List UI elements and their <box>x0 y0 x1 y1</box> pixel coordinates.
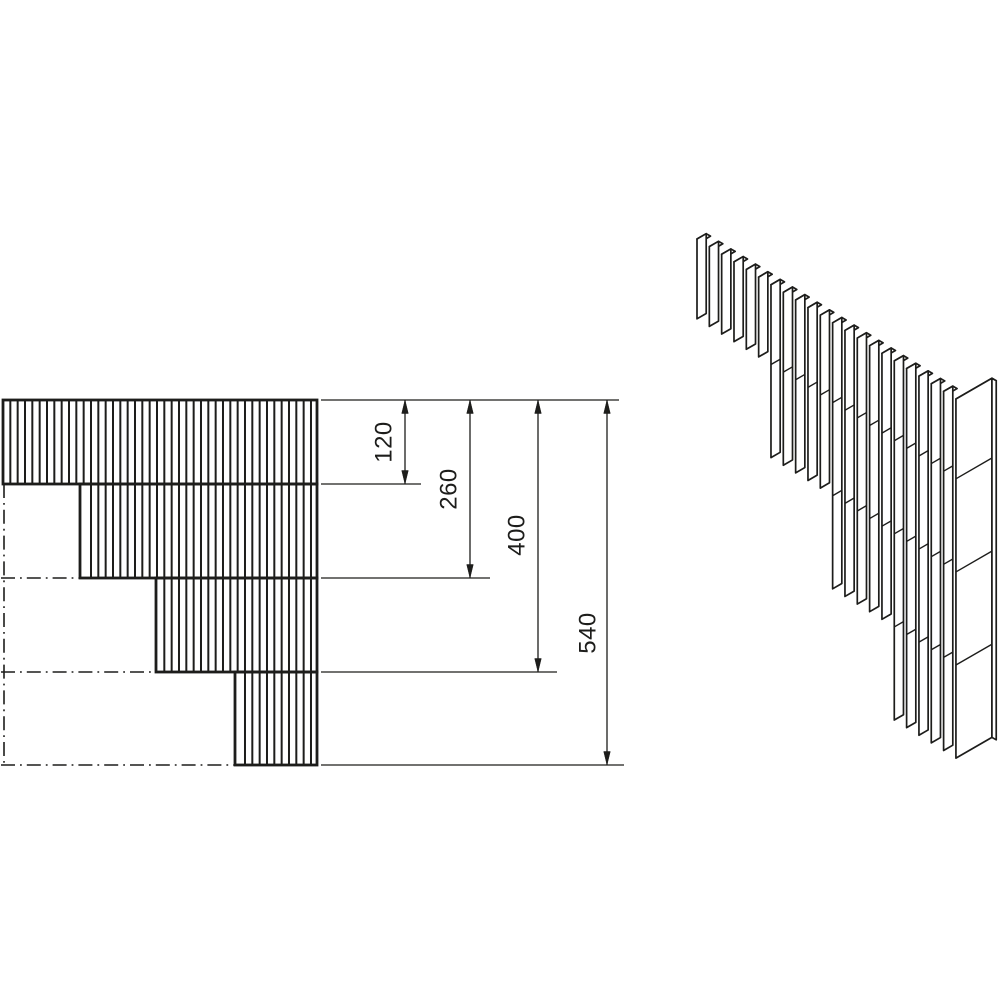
slat-front-face <box>734 257 743 342</box>
slat-front-face <box>759 272 768 357</box>
dimension-arrow-down <box>535 659 542 673</box>
dimension-arrow-up <box>535 400 542 414</box>
slat <box>808 302 822 480</box>
dimension-arrow-down <box>604 752 611 766</box>
end-panel-side-face <box>992 378 996 740</box>
slat <box>709 241 723 326</box>
slat <box>697 234 711 319</box>
front-view-row <box>235 672 317 765</box>
slat <box>894 356 908 720</box>
slat-front-face <box>919 371 928 735</box>
drawing-canvas: 120260400540 <box>0 0 1000 1000</box>
slat <box>746 264 760 349</box>
front-view-fins <box>10 400 311 765</box>
dimension-label: 540 <box>575 612 602 654</box>
slat <box>771 279 785 457</box>
dimensions: 120260400540 <box>321 400 624 765</box>
slat-front-face <box>796 295 805 473</box>
slat <box>907 363 921 727</box>
iso-view <box>697 234 996 758</box>
slat-front-face <box>697 234 706 319</box>
dimension-arrow-up <box>402 400 409 414</box>
slat <box>857 333 871 604</box>
slat-front-face <box>820 310 829 488</box>
dimension-arrow-up <box>604 400 611 414</box>
slat <box>734 257 748 342</box>
slat-front-face <box>870 340 879 611</box>
centerlines <box>1 484 235 766</box>
slat <box>845 325 859 596</box>
dimension-arrow-down <box>467 565 474 579</box>
dimension-arrow-up <box>467 400 474 414</box>
slat <box>796 295 810 473</box>
slat-front-face <box>894 356 903 720</box>
end-panel <box>956 378 996 758</box>
slat-front-face <box>722 249 731 334</box>
slat <box>870 340 884 611</box>
slat <box>882 348 896 619</box>
slat-front-face <box>907 363 916 727</box>
slat-front-face <box>833 318 842 589</box>
dimension-label: 260 <box>436 468 463 510</box>
slat-front-face <box>771 279 780 457</box>
slat-front-face <box>944 386 953 750</box>
slat <box>833 318 847 589</box>
slat <box>931 378 945 742</box>
slat-front-face <box>783 287 792 465</box>
slat <box>722 249 736 334</box>
slat <box>944 386 958 750</box>
slat-front-face <box>931 378 940 742</box>
front-view-row <box>156 578 317 672</box>
dimension-label: 400 <box>504 514 531 556</box>
front-view-row <box>3 400 317 484</box>
dimension-label: 120 <box>371 421 398 463</box>
slat <box>919 371 933 735</box>
slat-front-face <box>845 325 854 596</box>
slat-front-face <box>857 333 866 604</box>
technical-drawing-figure: 120260400540 <box>0 0 1000 1000</box>
dimension-arrow-down <box>402 471 409 485</box>
slat <box>783 287 797 465</box>
slat <box>759 272 773 357</box>
slat <box>820 310 834 488</box>
front-view-rows <box>3 400 317 765</box>
slat-front-face <box>709 241 718 326</box>
slat-front-face <box>746 264 755 349</box>
slat-front-face <box>808 302 817 480</box>
slat-front-face <box>882 348 891 619</box>
